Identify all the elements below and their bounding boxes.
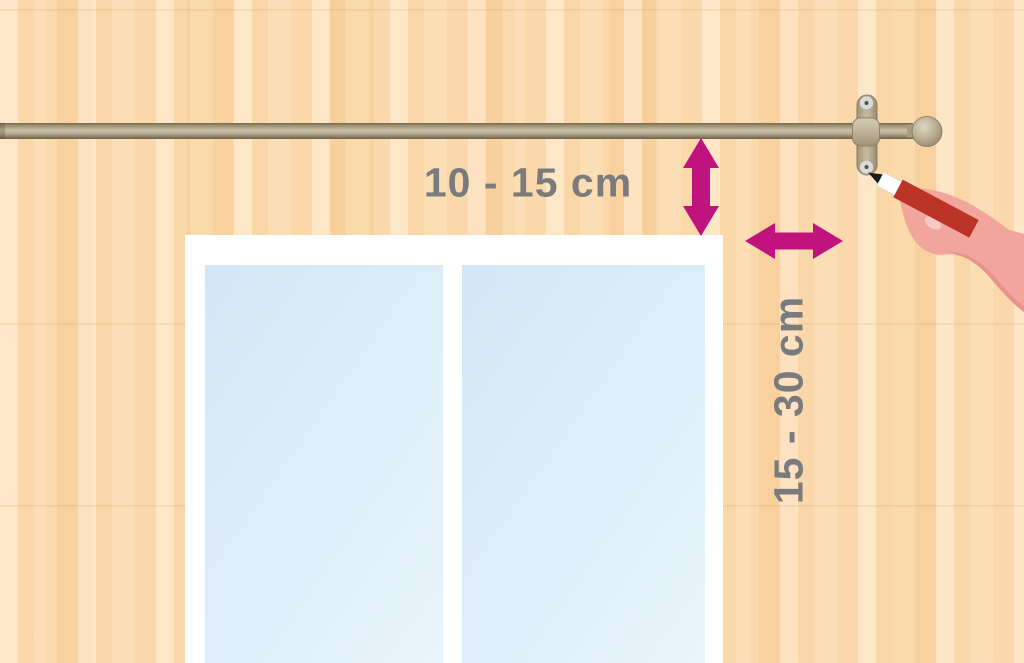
bracket-screw-top [860, 96, 874, 110]
rod-finial-ball [912, 117, 942, 147]
curtain-rod-measurement-diagram: 10 - 15 cm 15 - 30 cm [0, 0, 1024, 663]
label-window-to-bracket: 15 - 30 cm [766, 296, 813, 504]
horizontal-double-arrow-icon [745, 223, 843, 259]
label-rod-to-window: 10 - 15 cm [424, 160, 632, 207]
bracket-collar [853, 118, 880, 146]
rod-end-cap [0, 123, 5, 139]
curtain-rod [0, 123, 913, 139]
vertical-double-arrow-icon [683, 138, 719, 236]
scene-overlay [0, 0, 1024, 663]
bracket-screw-bottom [860, 160, 874, 174]
